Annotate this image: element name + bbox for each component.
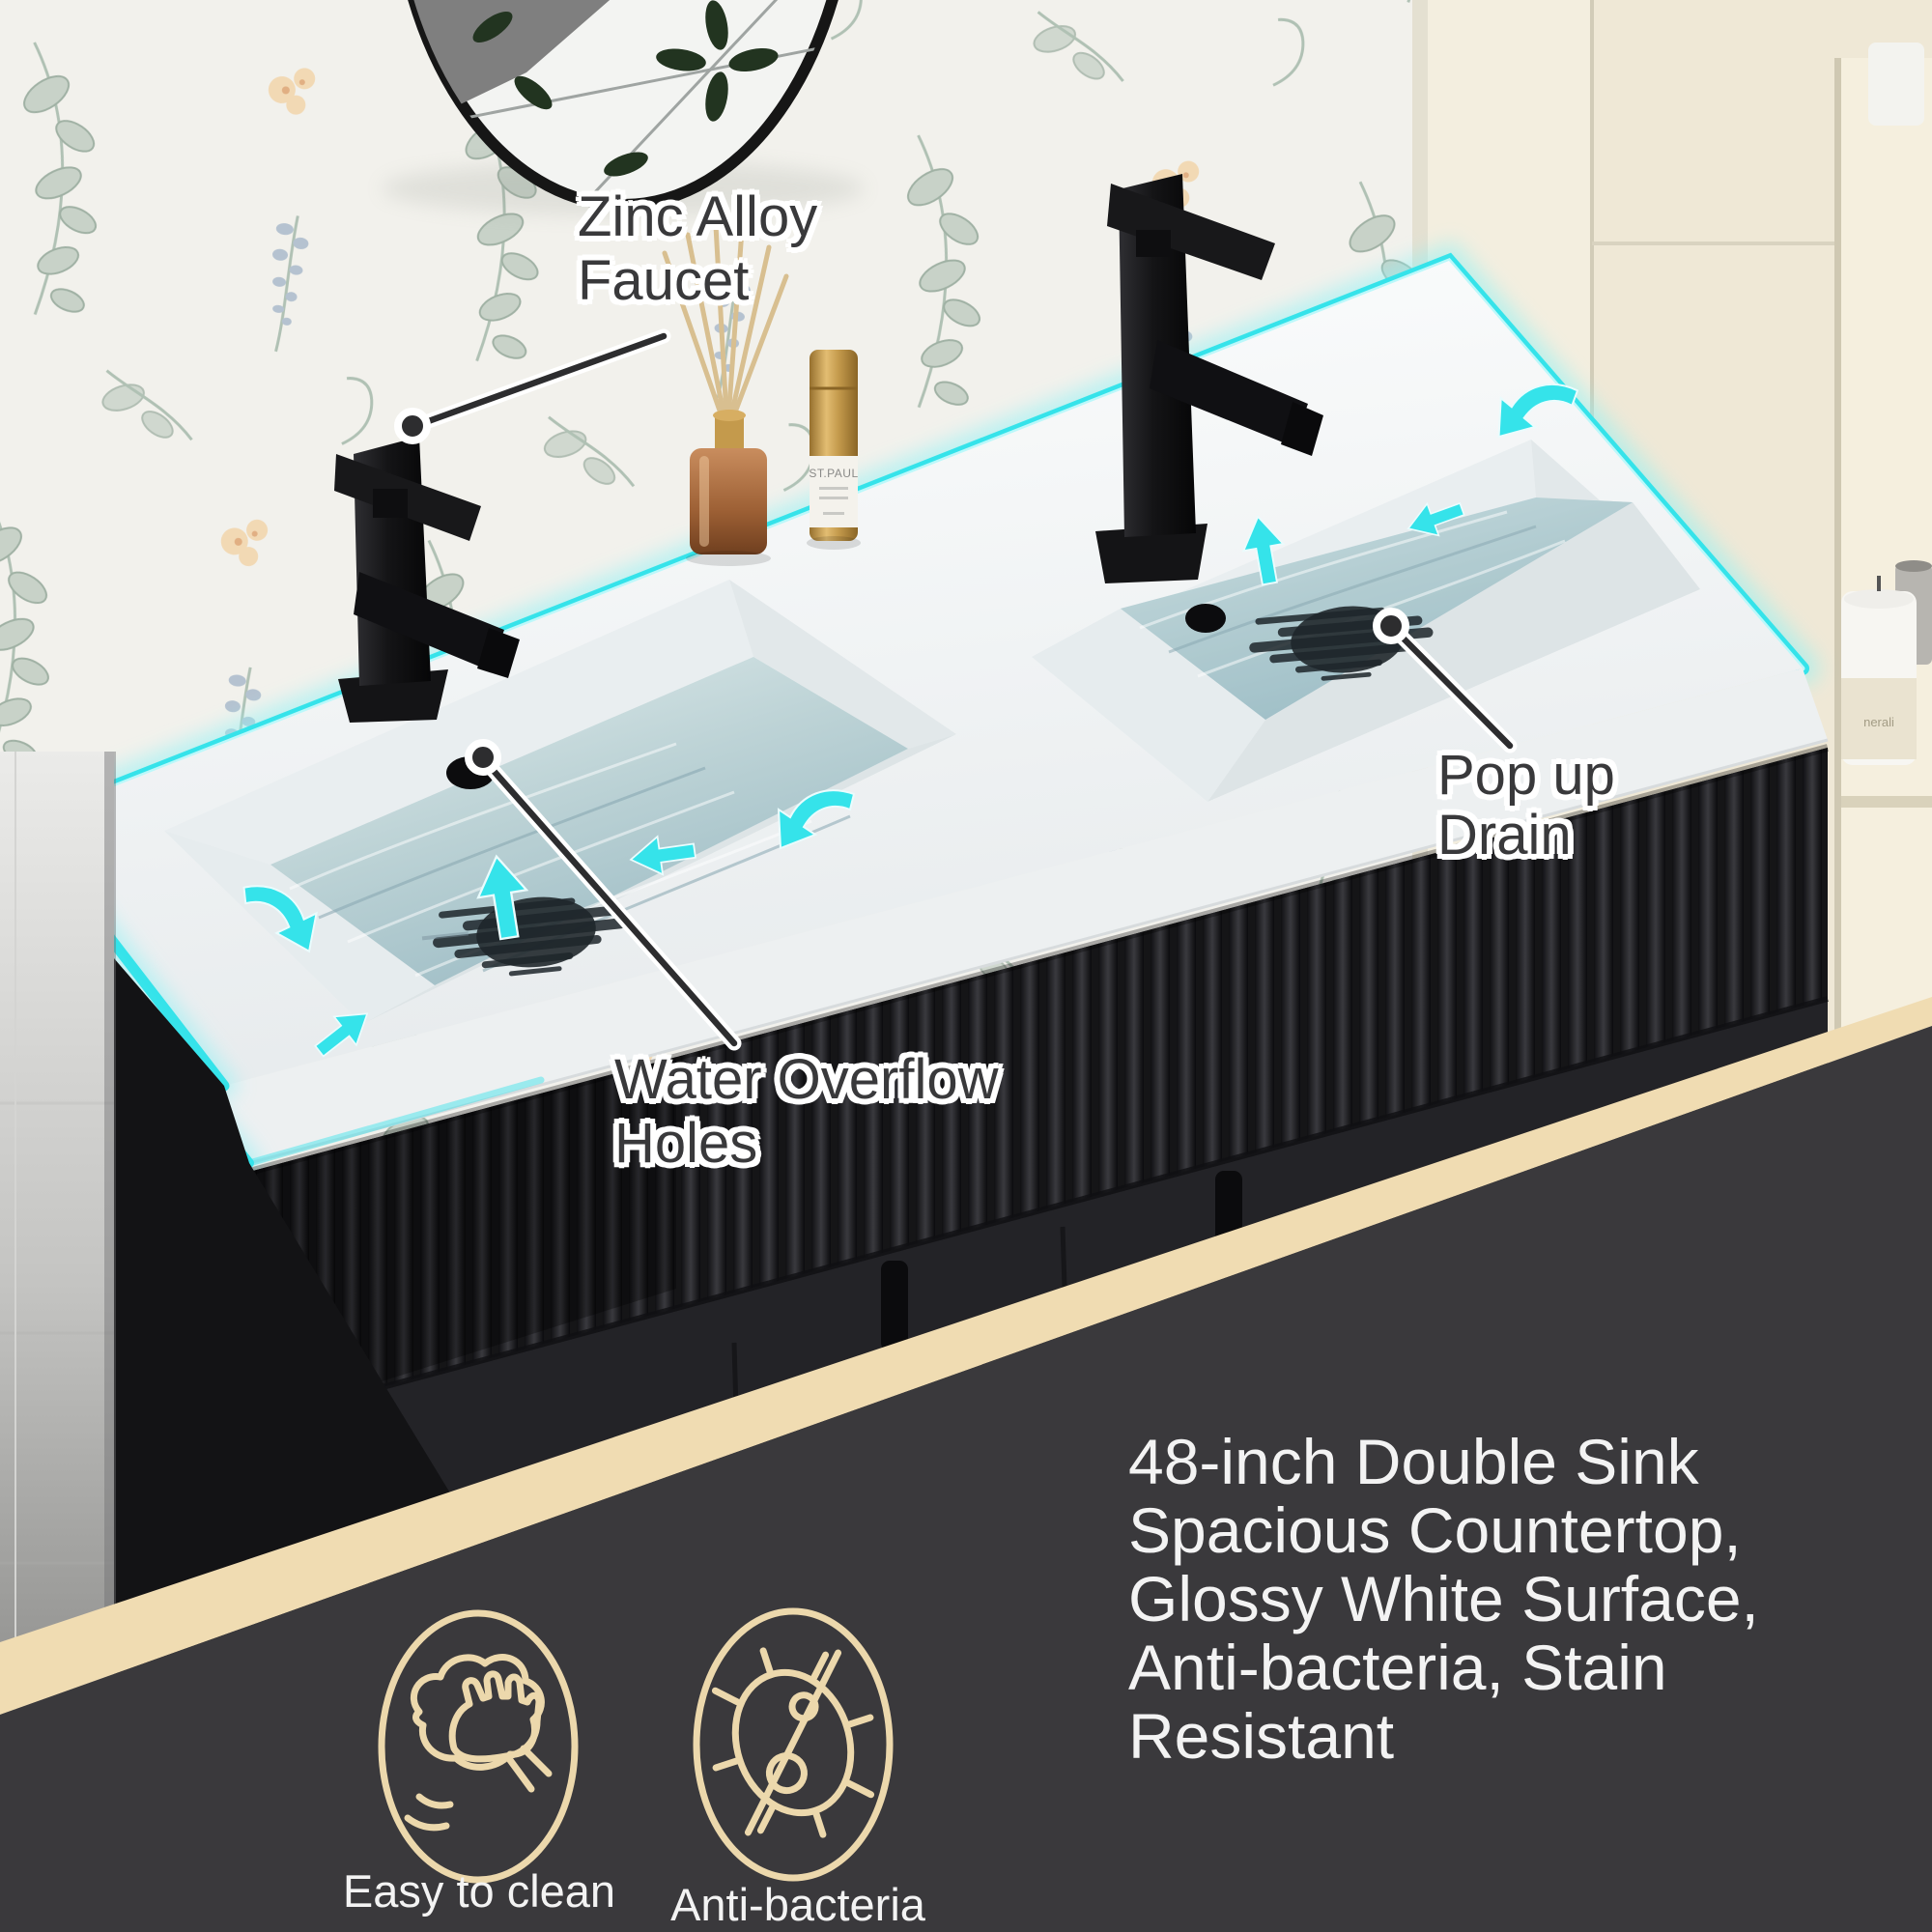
product-infographic: nerali (0, 0, 1932, 1932)
svg-text:ST.PAUL: ST.PAUL (809, 467, 858, 480)
description-line: Spacious Countertop, (1128, 1496, 1759, 1565)
feature-label-anti-bacteria: Anti-bacteria (609, 1878, 987, 1931)
drain-callout-line2: Drain (1437, 806, 1615, 866)
wipe-clean-icon (369, 1604, 587, 1889)
drain-callout-line1: Pop up (1437, 746, 1615, 806)
gold-spray-bottle: ST.PAUL (807, 350, 861, 550)
drain-callout-label: Pop up Drain (1437, 746, 1615, 866)
description-line: 48-inch Double Sink (1128, 1428, 1759, 1496)
description-line: Glossy White Surface, (1128, 1565, 1759, 1634)
overflow-callout-line2: Holes (614, 1112, 998, 1176)
overflow-callout-line1: Water Overflow (614, 1048, 998, 1112)
tile-wall (0, 752, 116, 1718)
no-bacteria-icon (684, 1602, 902, 1888)
description-line: Resistant (1128, 1702, 1759, 1771)
faucet-callout-line2: Faucet (578, 249, 817, 313)
svg-text:nerali: nerali (1863, 715, 1894, 729)
door-handle (881, 1261, 908, 1351)
candle-jar: nerali (1841, 576, 1917, 765)
faucet-callout-label: Zinc Alloy Faucet (578, 185, 817, 313)
product-description: 48-inch Double Sink Spacious Countertop,… (1128, 1428, 1759, 1771)
overflow-hole-right (1185, 604, 1226, 633)
description-line: Anti-bacteria, Stain (1128, 1634, 1759, 1702)
overflow-callout-label: Water Overflow Holes (614, 1048, 998, 1176)
faucet-callout-line1: Zinc Alloy (578, 185, 817, 249)
